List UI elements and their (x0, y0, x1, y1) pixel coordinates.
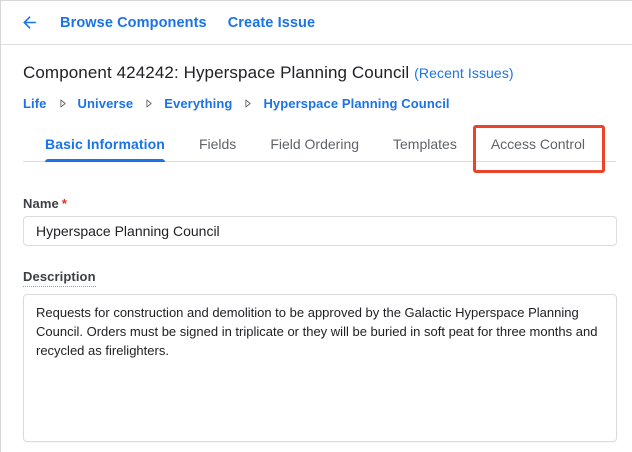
recent-issues-link[interactable]: (Recent Issues) (414, 65, 514, 81)
active-tab-indicator (45, 159, 165, 162)
create-issue-link[interactable]: Create Issue (228, 15, 315, 31)
breadcrumb-item-hyperspace-planning-council[interactable]: Hyperspace Planning Council (263, 96, 449, 111)
browse-components-link[interactable]: Browse Components (60, 15, 207, 31)
component-title-text: Component 424242: Hyperspace Planning Co… (23, 63, 409, 82)
main-content: Component 424242: Hyperspace Planning Co… (1, 62, 632, 442)
page-title: Component 424242: Hyperspace Planning Co… (23, 62, 616, 84)
required-asterisk: * (62, 196, 67, 211)
tab-access-control[interactable]: Access Control (491, 126, 585, 161)
back-button[interactable] (20, 13, 39, 32)
chevron-right-icon (241, 97, 254, 110)
tab-label: Access Control (491, 136, 585, 152)
tab-fields[interactable]: Fields (199, 126, 236, 161)
chevron-right-icon (142, 97, 155, 110)
description-field-label: Description (23, 269, 96, 287)
tab-label: Field Ordering (270, 136, 359, 152)
breadcrumb-item-everything[interactable]: Everything (164, 96, 232, 111)
arrow-back-icon (20, 13, 39, 32)
breadcrumb: Life Universe Everything Hyperspace Plan… (23, 96, 616, 111)
name-label-text: Name (23, 196, 59, 211)
top-toolbar: Browse Components Create Issue (1, 1, 632, 45)
name-field-label: Name* (23, 196, 616, 211)
chevron-right-icon (56, 97, 69, 110)
tab-basic-information[interactable]: Basic Information (45, 126, 165, 161)
basic-information-form: Name* Description Requests for construct… (23, 196, 616, 442)
tab-bar: Basic Information Fields Field Ordering … (23, 126, 616, 162)
name-input[interactable] (23, 216, 617, 246)
tab-field-ordering[interactable]: Field Ordering (270, 126, 359, 161)
description-textarea[interactable]: Requests for construction and demolition… (23, 294, 617, 442)
tab-label: Basic Information (45, 136, 165, 152)
breadcrumb-item-universe[interactable]: Universe (78, 96, 134, 111)
issue-tracker-window: Browse Components Create Issue Component… (0, 0, 632, 452)
breadcrumb-item-life[interactable]: Life (23, 96, 47, 111)
tab-label: Templates (393, 136, 457, 152)
tab-templates[interactable]: Templates (393, 126, 457, 161)
tab-label: Fields (199, 136, 236, 152)
